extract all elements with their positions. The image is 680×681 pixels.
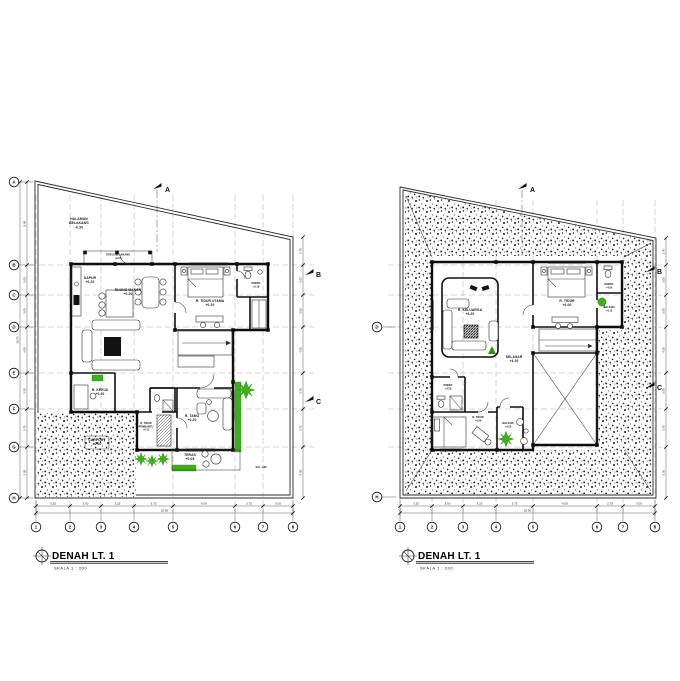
svg-text:6.00: 6.00 — [201, 501, 207, 505]
title-block: DENAH LT. 1 SKALA 1 : 200 — [399, 547, 534, 571]
dimensions-left: 8.00 3.00 3.00 4.50 3.50 3.75 5.00 30.75 — [16, 180, 29, 499]
svg-text:6.00: 6.00 — [562, 501, 568, 505]
svg-text:3.00: 3.00 — [275, 501, 281, 505]
carport-paving — [37, 413, 136, 497]
room-label-r-tidur-2: R. TIDUR+4.20 — [472, 415, 483, 422]
svg-text:3.00: 3.00 — [662, 277, 666, 283]
dimensions-bottom: 3.25 3.00 3.25 3.75 6.00 2.75 3.00 25.00 — [34, 500, 294, 516]
guest-sofa — [197, 389, 232, 430]
svg-text:3.00: 3.00 — [662, 308, 666, 314]
svg-text:8.00: 8.00 — [23, 220, 27, 226]
planter-box — [92, 375, 103, 381]
svg-text:H: H — [12, 496, 15, 501]
section-flag-c — [305, 396, 314, 402]
svg-text:E: E — [13, 371, 16, 376]
grid-bubbles-rows: D H — [372, 322, 396, 502]
svg-text:3.25: 3.25 — [477, 501, 483, 505]
section-flag-b — [305, 269, 314, 275]
svg-text:3.25: 3.25 — [115, 501, 121, 505]
svg-text:3.75: 3.75 — [512, 501, 518, 505]
svg-text:3.00: 3.00 — [23, 308, 27, 314]
maid-bed — [154, 395, 173, 446]
svg-text:3.75: 3.75 — [151, 501, 157, 505]
svg-text:4.50: 4.50 — [299, 347, 303, 353]
room-label-r-tidur-pembantu: R. TIDURPEMBANTU+0.15 — [139, 421, 154, 432]
svg-text:3.25: 3.25 — [413, 501, 419, 505]
room-label-selasar: SELASAR+4.20 — [506, 355, 523, 363]
svg-text:3.00: 3.00 — [23, 277, 27, 283]
svg-text:3.00: 3.00 — [299, 277, 303, 283]
upper-toilet — [604, 266, 612, 278]
room-label-km-wc-2: KM/WC+4.20 — [443, 383, 452, 390]
lower-left-bath — [437, 396, 462, 410]
title-block: DENAH LT. 1 SKALA 1 : 200 — [33, 547, 168, 571]
corner-plant — [488, 346, 496, 354]
svg-text:5.00: 5.00 — [299, 469, 303, 475]
section-label-a: A — [530, 187, 535, 194]
svg-text:3.00: 3.00 — [636, 501, 642, 505]
toilet — [244, 267, 262, 279]
section-label-b: B — [316, 272, 321, 279]
dimensions-right: 2.70 3.00 3.00 4.50 3.50 3.75 5.00 — [662, 236, 668, 499]
dimensions-right: 2.70 3.00 3.00 4.50 3.50 3.75 5.00 — [299, 235, 305, 499]
svg-text:3.00: 3.00 — [445, 501, 451, 505]
void-cross — [533, 353, 597, 445]
staircase — [178, 331, 232, 367]
dining-table — [135, 277, 166, 308]
tv-unit — [470, 285, 490, 291]
plant-icon — [135, 453, 148, 466]
room-label-km-wc-1: KM/WC+4.00 — [604, 282, 613, 289]
svg-text:3.75: 3.75 — [662, 425, 666, 431]
svg-text:25.00: 25.00 — [161, 509, 169, 513]
svg-text:2.70: 2.70 — [662, 248, 666, 254]
plan-title: DENAH LT. 1 — [418, 551, 481, 562]
svg-text:3.50: 3.50 — [662, 388, 666, 394]
room-label-balkon-2: BALKON+4.20 — [502, 421, 513, 428]
svg-text:3.50: 3.50 — [23, 388, 27, 394]
room-label-teras: TERAS+0.05 — [184, 453, 196, 461]
grid-bubbles-rows: A B C D E F G H — [9, 177, 33, 503]
left-plan: A B C 3.25 3.00 3.25 3.75 6.00 2.75 3.00… — [9, 177, 321, 570]
section-label-c: C — [316, 399, 321, 406]
desk-chair — [472, 427, 491, 445]
plan-scale: SKALA 1 : 200 — [420, 566, 453, 571]
plant-icon — [237, 381, 255, 399]
svg-text:30.75: 30.75 — [16, 336, 20, 344]
svg-text:4.50: 4.50 — [662, 347, 666, 353]
planter-strip-vertical — [235, 382, 241, 452]
room-label-dapur: DAPUR+0.20 — [84, 276, 97, 284]
svg-text:2.70: 2.70 — [299, 248, 303, 254]
section-flag-a — [518, 183, 527, 189]
room-label-halaman-belakang: HALAMANBELAKANG-0.30 — [69, 217, 89, 229]
room-label-sal-air: SAL. AIR — [256, 465, 267, 469]
family-sofa — [82, 320, 140, 370]
svg-text:B: B — [12, 263, 15, 268]
room-label-km-wc: KM/WC+0.18 — [251, 281, 260, 288]
svg-text:D: D — [12, 325, 15, 330]
balcony-plant — [598, 298, 606, 306]
svg-text:G: G — [12, 445, 16, 450]
room-label-r-tamu: R. TAMU+0.20 — [185, 414, 200, 422]
right-plan: A B C 3.25 3.00 3.25 3.75 6.00 2.75 3.00… — [372, 183, 668, 571]
section-label-a: A — [165, 187, 170, 194]
svg-text:3.75: 3.75 — [299, 425, 303, 431]
svg-text:4.50: 4.50 — [23, 347, 27, 353]
svg-text:3.25: 3.25 — [50, 501, 56, 505]
cad-drawing: A B C 3.25 3.00 3.25 3.75 6.00 2.75 3.00… — [0, 0, 680, 681]
section-label-b: B — [657, 269, 662, 276]
svg-text:25.00: 25.00 — [524, 509, 532, 513]
svg-text:5.00: 5.00 — [662, 469, 666, 475]
closet — [252, 300, 266, 328]
datum-icon — [399, 547, 417, 565]
svg-text:3.50: 3.50 — [299, 388, 303, 394]
lower-bed — [433, 417, 466, 447]
datum-icon — [33, 547, 51, 565]
plan-scale: SKALA 1 : 200 — [54, 566, 87, 571]
section-flag-a — [153, 183, 162, 189]
svg-text:2.75: 2.75 — [246, 501, 252, 505]
plant-icon — [146, 455, 158, 467]
plan-title: DENAH LT. 1 — [52, 551, 115, 562]
svg-text:2.75: 2.75 — [607, 501, 613, 505]
upper-family-sofa — [443, 299, 498, 350]
svg-text:F: F — [13, 407, 16, 412]
room-label-r-tidur-utama: R. TIDUR UTAMA+0.20 — [196, 299, 225, 307]
floor-plan-sheet: A B C 3.25 3.00 3.25 3.75 6.00 2.75 3.00… — [0, 0, 680, 681]
upper-staircase — [539, 329, 596, 351]
upper-bed — [541, 267, 592, 329]
room-label-r-keluarga: R. KELUARGA+4.20 — [458, 308, 483, 316]
svg-text:D: D — [375, 325, 378, 330]
room-label-balkon-1: BALKON+4.15 — [603, 305, 614, 312]
room-label-teras-belakang: TERAS BELAKANG+0.05 — [106, 253, 130, 260]
svg-text:3.00: 3.00 — [83, 501, 89, 505]
dimensions-bottom: 3.25 3.00 3.25 3.75 6.00 2.75 3.00 25.00 — [398, 500, 656, 516]
svg-text:3.75: 3.75 — [23, 425, 27, 431]
plant-icon — [498, 431, 513, 446]
svg-text:3.00: 3.00 — [299, 308, 303, 314]
svg-text:5.00: 5.00 — [23, 469, 27, 475]
svg-text:H: H — [375, 495, 378, 500]
master-bed — [181, 267, 230, 328]
room-label-r-tidur-1: R. TIDUR+4.00 — [559, 299, 575, 307]
plant-icon — [157, 453, 170, 466]
terrace-table — [202, 451, 221, 467]
